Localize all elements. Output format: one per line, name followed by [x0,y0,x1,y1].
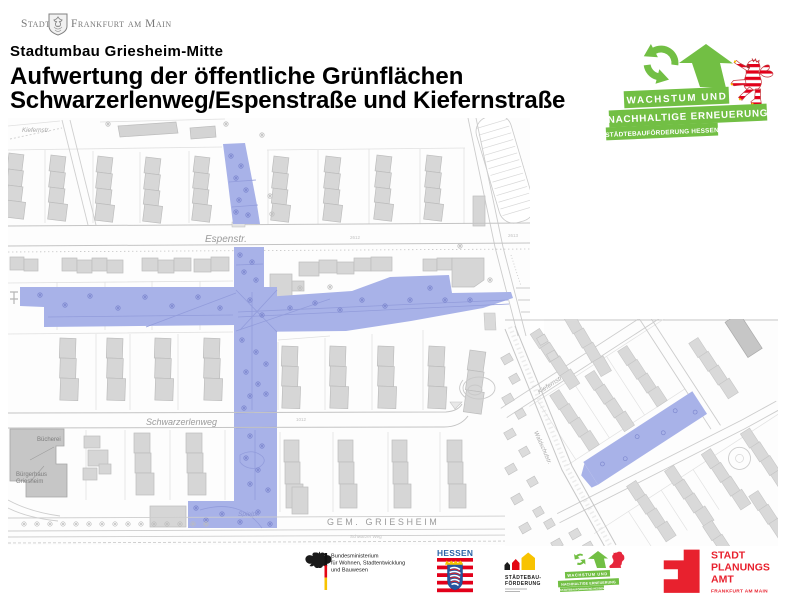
svg-text:FRANKFURT AM MAIN: FRANKFURT AM MAIN [711,589,768,595]
svg-text:AMT: AMT [711,574,734,586]
svg-text:Schwarzer Weg: Schwarzer Weg [350,534,382,539]
svg-text:Bürgerhaus: Bürgerhaus [16,472,47,478]
svg-text:für Wohnen, Stadtentwicklung: für Wohnen, Stadtentwicklung [331,561,405,567]
svg-text:Griesheim: Griesheim [16,479,43,485]
svg-text:FÖRDERUNG: FÖRDERUNG [505,580,541,587]
svg-text:und Bauwesen: und Bauwesen [331,568,368,574]
svg-text:HESSEN: HESSEN [437,548,473,558]
svg-text:Kiefernstr.: Kiefernstr. [22,127,50,134]
svg-text:STÄDTEBAU-: STÄDTEBAU- [505,574,542,581]
svg-text:Bücherei: Bücherei [37,437,61,443]
svg-text:2613: 2613 [508,233,519,238]
svg-text:GEM. GRIESHEIM: GEM. GRIESHEIM [327,517,439,527]
svg-text:Schwarzerlenweg: Schwarzerlenweg [146,417,217,427]
svg-text:PLANUNGS: PLANUNGS [711,562,770,574]
svg-text:Bundesministerium: Bundesministerium [331,554,379,560]
svg-text:2612: 2612 [350,235,361,240]
svg-text:1012: 1012 [296,417,307,422]
svg-text:STADT: STADT [711,550,746,562]
svg-text:Espenstr.: Espenstr. [205,234,247,245]
